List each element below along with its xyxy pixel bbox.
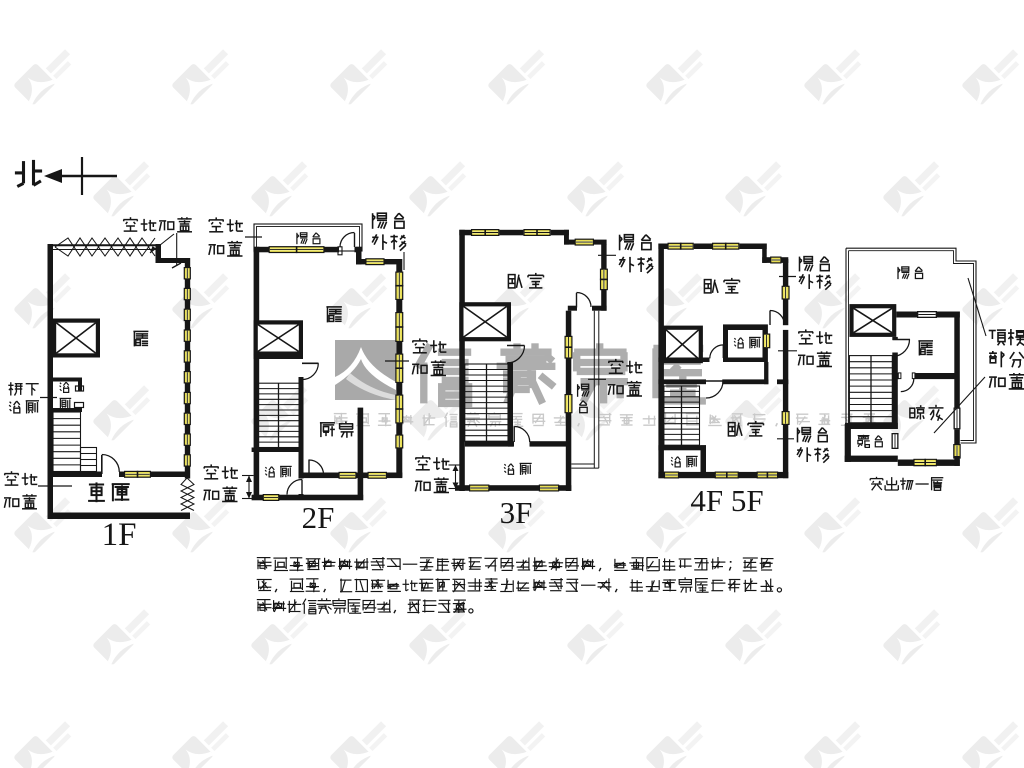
svg-text:1F: 1F xyxy=(102,517,137,553)
svg-text:4F 5F: 4F 5F xyxy=(690,483,763,518)
svg-text:3F: 3F xyxy=(500,495,533,530)
svg-text:2F: 2F xyxy=(302,500,335,535)
